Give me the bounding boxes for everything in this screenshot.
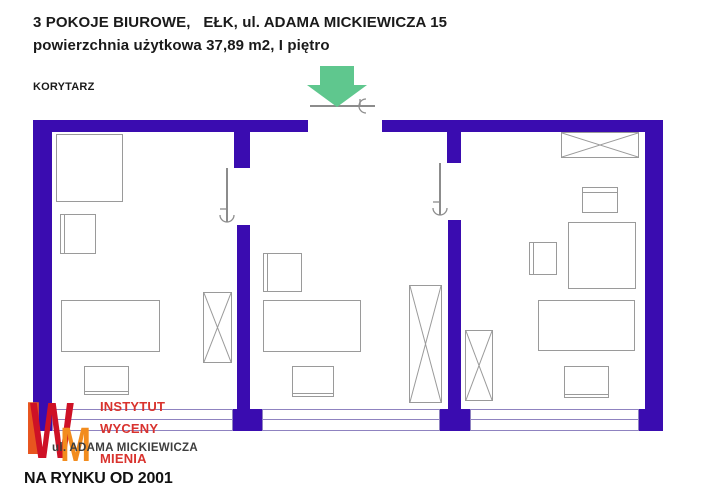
door-room2-icon xyxy=(431,161,451,223)
window-room1 xyxy=(52,409,233,431)
top-wall-right xyxy=(382,120,663,132)
room1-desk xyxy=(61,300,160,352)
furniture-edge-line xyxy=(293,393,333,394)
furniture-edge-line xyxy=(85,391,128,392)
divider1-base xyxy=(233,409,262,431)
cross-hatch xyxy=(562,133,638,157)
furniture-edge-line xyxy=(583,192,617,193)
entrance-arrow-icon xyxy=(306,64,368,108)
cross-hatch xyxy=(410,286,441,402)
furniture-edge-line xyxy=(64,215,65,253)
right-wall xyxy=(645,120,663,431)
room3-shelf xyxy=(561,132,639,158)
cross-hatch xyxy=(204,293,231,362)
room2-desk xyxy=(263,300,361,352)
room1-cabinet-small xyxy=(60,214,96,254)
left-wall xyxy=(33,120,52,431)
right-wall-base xyxy=(639,409,646,431)
divider2-top xyxy=(447,131,461,163)
room2-wardrobe xyxy=(409,285,442,403)
window-room2 xyxy=(262,409,440,431)
room3-table xyxy=(568,222,636,289)
top-wall-left xyxy=(33,120,308,132)
window-mid-line xyxy=(53,419,232,420)
room3-cabinet-top xyxy=(582,187,618,213)
furniture-edge-line xyxy=(565,394,608,395)
cross-hatch xyxy=(466,331,492,400)
room3-cabinet-small xyxy=(529,242,557,275)
room1-chair xyxy=(84,366,129,395)
door-room1-icon xyxy=(218,166,238,230)
divider1-main xyxy=(237,225,250,409)
furniture-edge-line xyxy=(267,254,268,291)
floor-plan xyxy=(0,0,705,500)
room1-wardrobe xyxy=(203,292,232,363)
floorplan-page: 3 POKOJE BIUROWE, EŁK, ul. ADAMA MICKIEW… xyxy=(0,0,705,500)
divider2-main xyxy=(448,220,461,409)
room1-cabinet-large xyxy=(56,134,123,202)
divider1-top xyxy=(234,131,250,168)
room2-cabinet xyxy=(263,253,302,292)
window-mid-line xyxy=(263,419,439,420)
divider2-base xyxy=(440,409,470,431)
room2-chair xyxy=(292,366,334,397)
window-room3 xyxy=(470,409,639,431)
furniture-edge-line xyxy=(533,243,534,274)
room3-chair xyxy=(564,366,609,398)
room3-wardrobe xyxy=(465,330,493,401)
window-mid-line xyxy=(471,419,638,420)
room3-desk xyxy=(538,300,635,351)
